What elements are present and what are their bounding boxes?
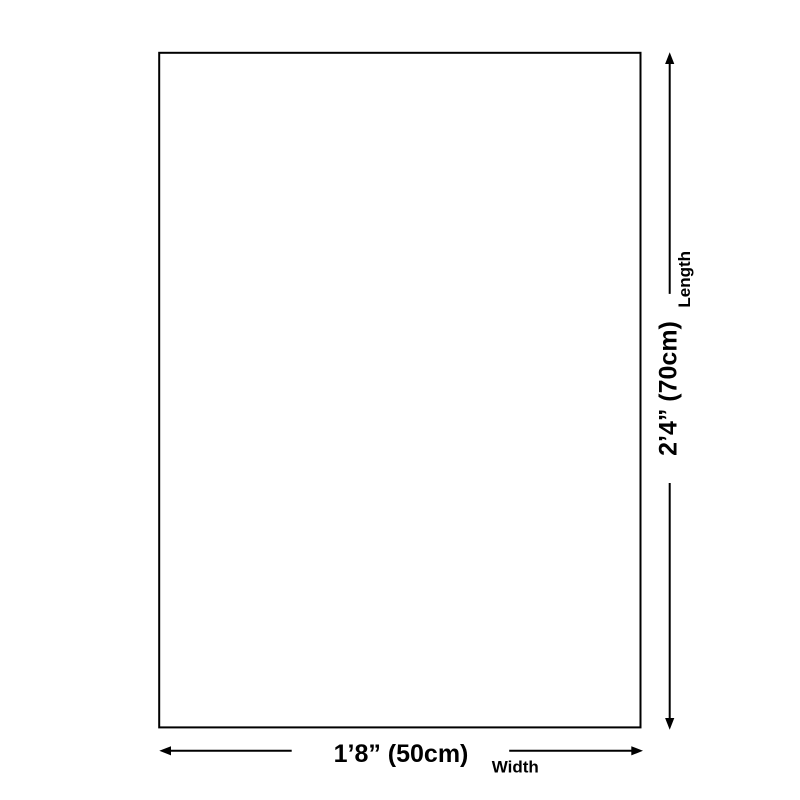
svg-text:Length: Length — [675, 251, 694, 308]
svg-text:Width: Width — [492, 758, 539, 777]
svg-text:2’4” (70cm): 2’4” (70cm) — [655, 321, 683, 456]
svg-text:1’8” (50cm): 1’8” (50cm) — [334, 740, 469, 768]
